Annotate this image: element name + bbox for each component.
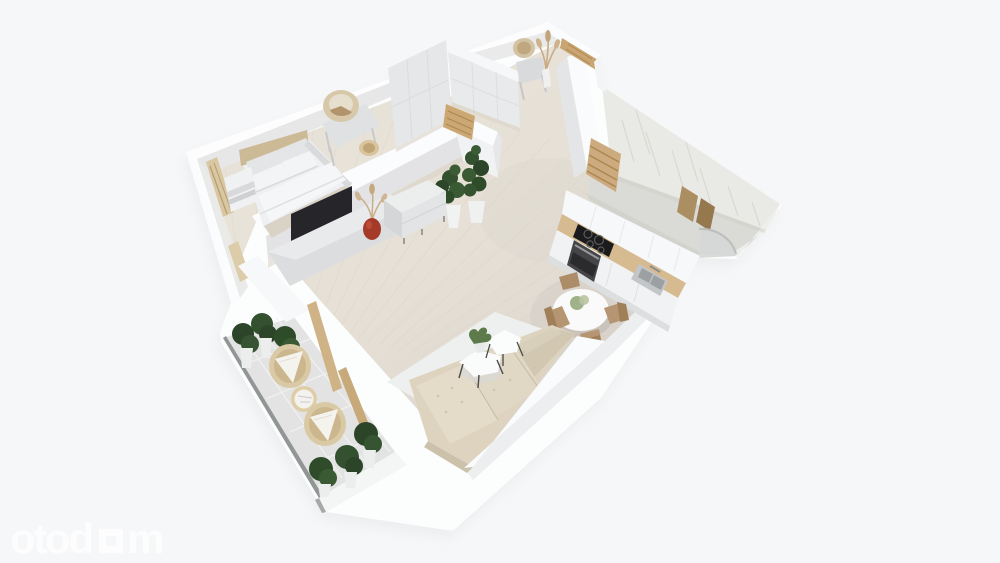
svg-text:m: m: [127, 515, 164, 562]
svg-text:otod: otod: [10, 515, 94, 562]
